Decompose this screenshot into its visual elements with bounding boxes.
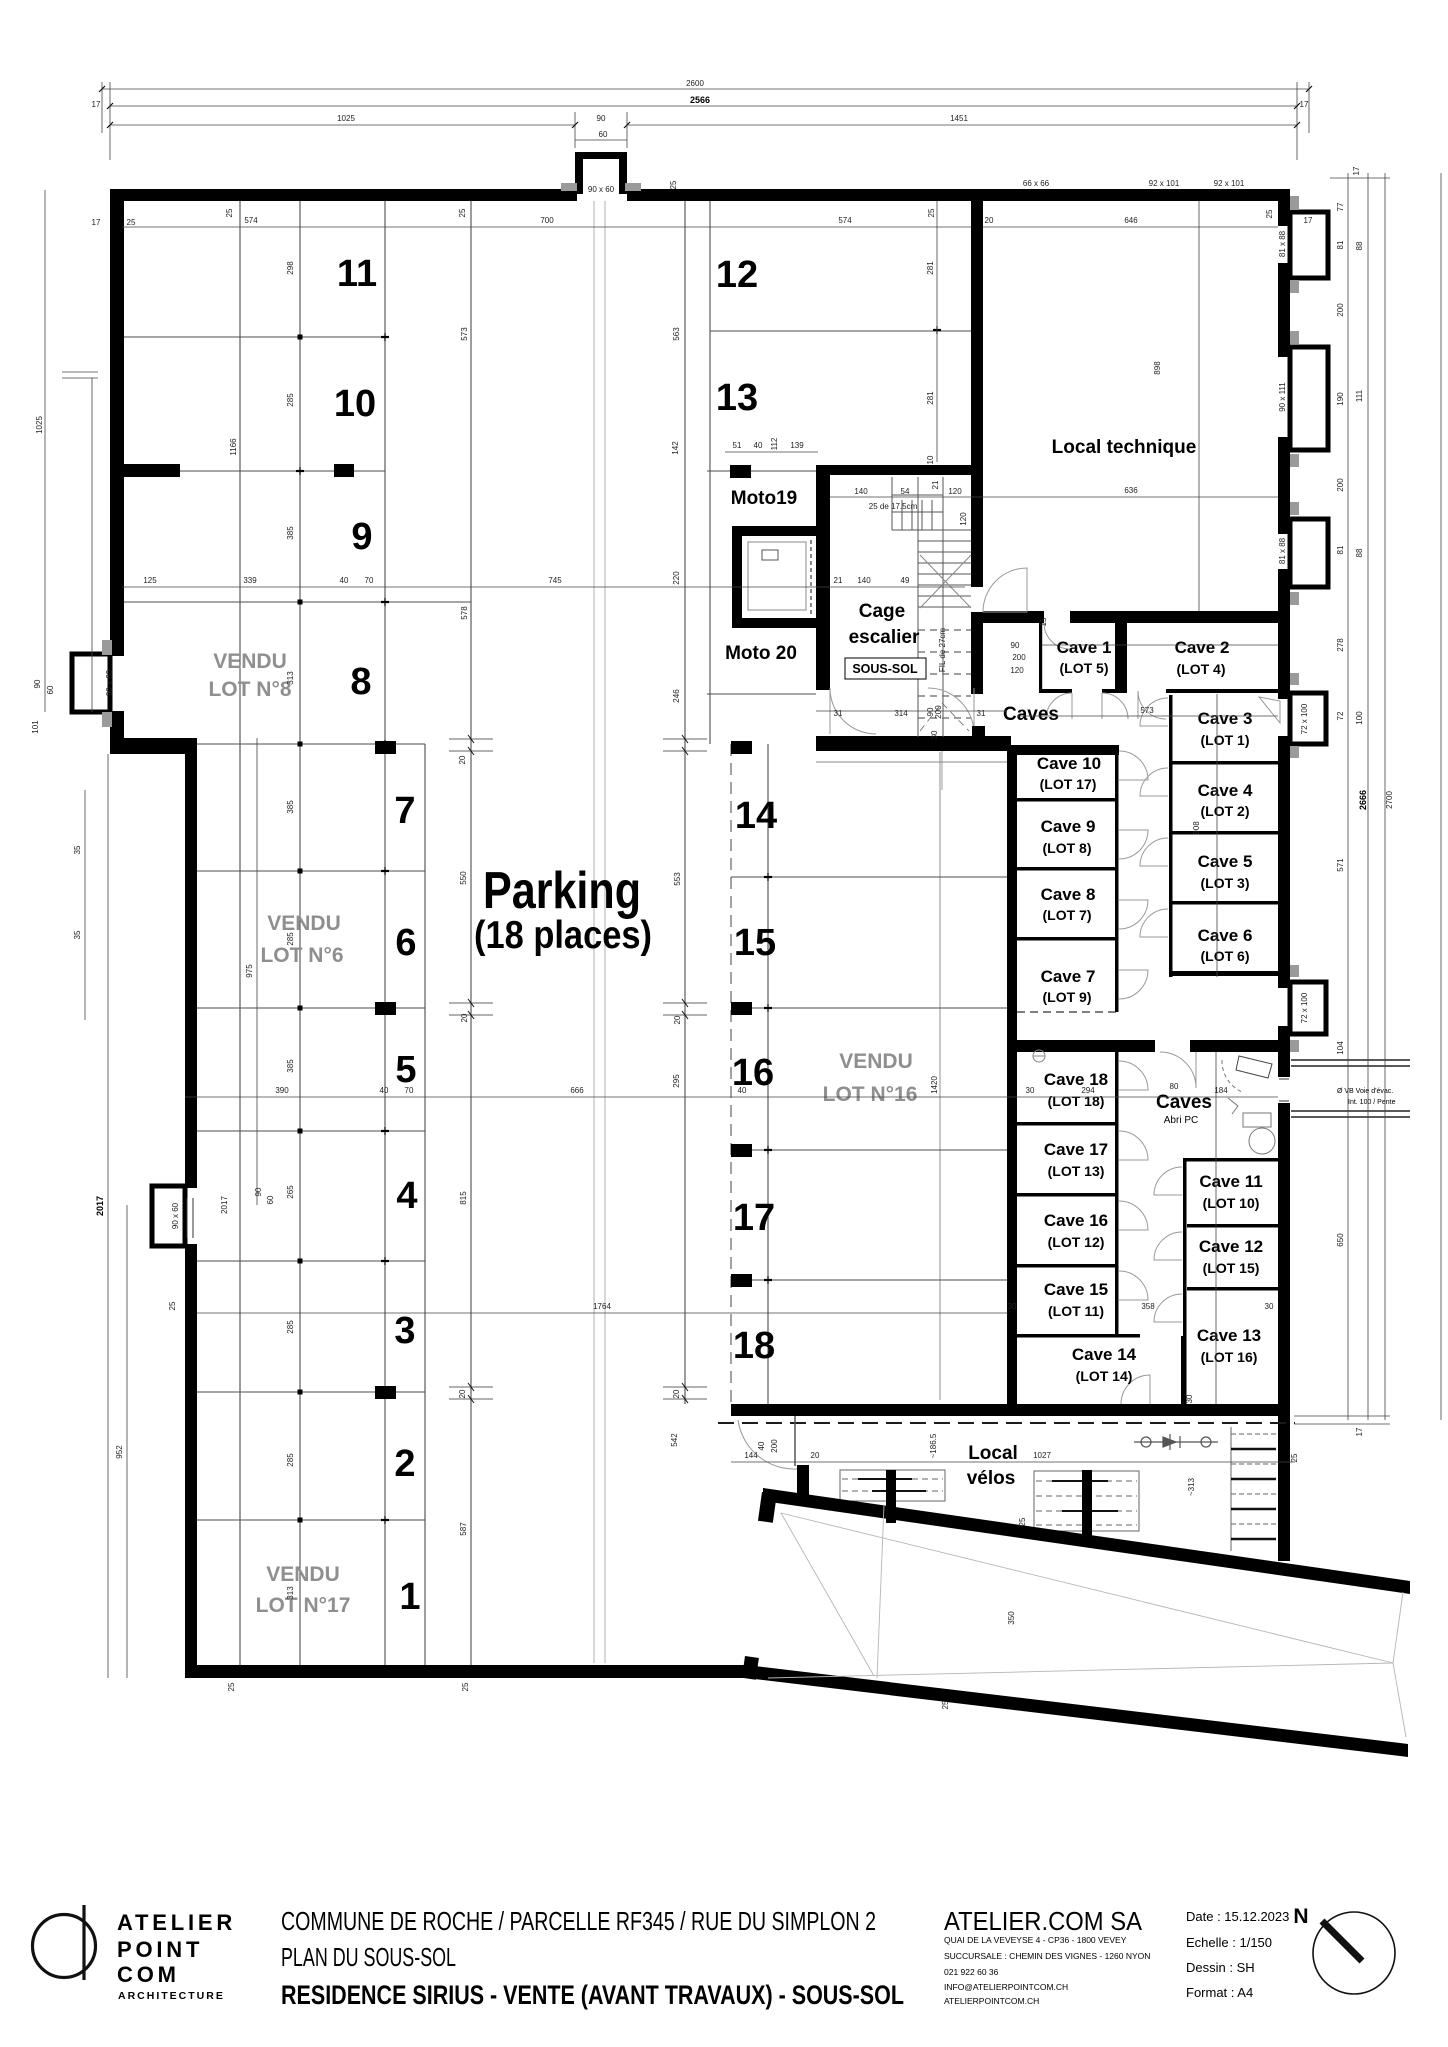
svg-text:VENDU: VENDU bbox=[213, 650, 287, 673]
svg-text:1027: 1027 bbox=[1033, 1451, 1051, 1460]
svg-text:(LOT 18): (LOT 18) bbox=[1048, 1093, 1105, 1109]
svg-text:10: 10 bbox=[926, 455, 935, 464]
svg-text:Int. 100 / Pente: Int. 100 / Pente bbox=[1348, 1099, 1396, 1106]
svg-text:285: 285 bbox=[286, 393, 295, 407]
svg-text:10: 10 bbox=[334, 383, 376, 425]
svg-text:9: 9 bbox=[351, 516, 372, 558]
svg-text:650: 650 bbox=[1336, 1233, 1345, 1247]
svg-text:666: 666 bbox=[570, 1086, 584, 1095]
svg-text:Cave 16: Cave 16 bbox=[1044, 1211, 1108, 1230]
svg-text:80: 80 bbox=[1170, 1082, 1179, 1091]
svg-text:17: 17 bbox=[92, 100, 101, 109]
svg-text:700: 700 bbox=[540, 216, 554, 225]
svg-text:Cave 1: Cave 1 bbox=[1057, 638, 1112, 657]
svg-text:15: 15 bbox=[1039, 617, 1048, 626]
svg-text:265: 265 bbox=[286, 1185, 295, 1199]
svg-text:1: 1 bbox=[399, 1576, 420, 1618]
svg-text:35: 35 bbox=[73, 930, 82, 939]
svg-text:246: 246 bbox=[672, 689, 681, 703]
svg-text:40: 40 bbox=[380, 1086, 389, 1095]
svg-text:30: 30 bbox=[1008, 1302, 1017, 1311]
svg-text:Caves: Caves bbox=[1156, 1092, 1212, 1113]
svg-text:313: 313 bbox=[286, 1586, 295, 1600]
svg-text:Local technique: Local technique bbox=[1052, 437, 1197, 458]
svg-text:30: 30 bbox=[1026, 1086, 1035, 1095]
svg-text:3: 3 bbox=[394, 1310, 415, 1352]
svg-text:31: 31 bbox=[834, 709, 843, 718]
svg-text:140: 140 bbox=[857, 576, 871, 585]
svg-text:563: 563 bbox=[672, 327, 681, 341]
svg-text:Parking: Parking bbox=[483, 862, 641, 920]
svg-text:81 x 88: 81 x 88 bbox=[1278, 230, 1287, 257]
svg-text:25: 25 bbox=[168, 1301, 177, 1310]
svg-text:7: 7 bbox=[394, 790, 415, 832]
svg-text:975: 975 bbox=[245, 964, 254, 978]
svg-text:140: 140 bbox=[854, 487, 868, 496]
svg-text:200: 200 bbox=[1336, 478, 1345, 492]
svg-text:17: 17 bbox=[1352, 166, 1361, 175]
svg-text:2: 2 bbox=[394, 1443, 415, 1485]
svg-text:77: 77 bbox=[1336, 202, 1345, 211]
svg-text:101: 101 bbox=[31, 720, 40, 734]
svg-text:81: 81 bbox=[1336, 545, 1345, 554]
svg-text:5: 5 bbox=[395, 1049, 416, 1091]
svg-text:20: 20 bbox=[673, 1015, 682, 1024]
svg-text:(LOT 12): (LOT 12) bbox=[1048, 1234, 1105, 1250]
svg-text:Cave 15: Cave 15 bbox=[1044, 1280, 1108, 1299]
svg-text:550: 550 bbox=[459, 871, 468, 885]
svg-text:90: 90 bbox=[254, 1187, 263, 1196]
svg-text:17: 17 bbox=[1355, 1427, 1364, 1436]
svg-text:Dessin : SH: Dessin : SH bbox=[1186, 1960, 1255, 1975]
svg-text:2566: 2566 bbox=[690, 95, 710, 105]
svg-text:2017: 2017 bbox=[95, 1196, 105, 1216]
svg-text:(18 places): (18 places) bbox=[474, 914, 652, 957]
svg-text:2666: 2666 bbox=[1358, 790, 1368, 810]
svg-text:72 x 100: 72 x 100 bbox=[1300, 703, 1309, 734]
svg-text:6: 6 bbox=[395, 922, 416, 964]
svg-text:LOT N°16: LOT N°16 bbox=[823, 1083, 918, 1106]
svg-text:(LOT 11): (LOT 11) bbox=[1048, 1303, 1104, 1319]
svg-text:Date : 15.12.2023: Date : 15.12.2023 bbox=[1186, 1909, 1289, 1924]
svg-text:Abri PC: Abri PC bbox=[1164, 1115, 1198, 1126]
svg-text:898: 898 bbox=[1153, 361, 1162, 375]
svg-text:PLAN DU SOUS-SOL: PLAN DU SOUS-SOL bbox=[281, 1942, 456, 1972]
svg-text:60: 60 bbox=[266, 1195, 275, 1204]
svg-text:745: 745 bbox=[548, 576, 562, 585]
svg-text:200: 200 bbox=[770, 1439, 779, 1453]
svg-text:Cave 13: Cave 13 bbox=[1197, 1326, 1261, 1345]
svg-text:542: 542 bbox=[670, 1433, 679, 1447]
svg-text:298: 298 bbox=[286, 261, 295, 275]
svg-text:11: 11 bbox=[337, 253, 377, 295]
svg-text:20: 20 bbox=[672, 1389, 681, 1398]
svg-text:RESIDENCE SIRIUS - VENTE (AVAN: RESIDENCE SIRIUS - VENTE (AVANT TRAVAUX)… bbox=[281, 1980, 904, 2010]
svg-text:Moto19: Moto19 bbox=[731, 488, 798, 509]
svg-text:VENDU: VENDU bbox=[267, 912, 341, 935]
svg-text:(LOT 2): (LOT 2) bbox=[1201, 803, 1250, 819]
svg-text:LOT N°8: LOT N°8 bbox=[208, 678, 291, 701]
svg-text:INFO@ATELIERPOINTCOM.CH: INFO@ATELIERPOINTCOM.CH bbox=[944, 1982, 1068, 1992]
svg-text:(LOT 13): (LOT 13) bbox=[1048, 1163, 1105, 1179]
svg-text:(LOT 15): (LOT 15) bbox=[1203, 1260, 1260, 1276]
svg-text:90: 90 bbox=[597, 114, 606, 123]
svg-text:POINT: POINT bbox=[117, 1937, 203, 1962]
svg-text:100: 100 bbox=[1355, 711, 1364, 725]
svg-text:574: 574 bbox=[838, 216, 852, 225]
svg-text:Cave 4: Cave 4 bbox=[1198, 781, 1253, 800]
svg-text:190: 190 bbox=[1336, 392, 1345, 406]
svg-text:40: 40 bbox=[340, 576, 349, 585]
svg-text:15: 15 bbox=[734, 922, 776, 964]
svg-text:120: 120 bbox=[948, 487, 962, 496]
svg-text:92 x 101: 92 x 101 bbox=[1214, 179, 1245, 188]
svg-text:Cave 8: Cave 8 bbox=[1041, 885, 1096, 904]
svg-text:COM: COM bbox=[117, 1962, 180, 1987]
svg-text:4: 4 bbox=[396, 1175, 417, 1217]
svg-text:281: 281 bbox=[926, 261, 935, 275]
svg-text:25: 25 bbox=[1018, 1517, 1027, 1526]
svg-text:Moto 20: Moto 20 bbox=[725, 643, 797, 664]
svg-text:(LOT 5): (LOT 5) bbox=[1060, 660, 1109, 676]
svg-text:12: 12 bbox=[716, 254, 758, 296]
svg-text:(LOT 9): (LOT 9) bbox=[1043, 989, 1092, 1005]
svg-text:1025: 1025 bbox=[337, 114, 355, 123]
svg-text:295: 295 bbox=[672, 1074, 681, 1088]
svg-text:ATELIER: ATELIER bbox=[117, 1910, 236, 1935]
svg-text:17: 17 bbox=[1300, 100, 1309, 109]
svg-text:90: 90 bbox=[1011, 641, 1020, 650]
svg-text:Cave 2: Cave 2 bbox=[1175, 638, 1230, 657]
svg-text:112: 112 bbox=[770, 437, 779, 450]
svg-text:70: 70 bbox=[405, 1086, 414, 1095]
svg-text:ATELIER.COM SA: ATELIER.COM SA bbox=[944, 1906, 1143, 1936]
svg-text:Caves: Caves bbox=[1003, 704, 1059, 725]
svg-text:90 x 60: 90 x 60 bbox=[588, 185, 615, 194]
svg-text:25 de 17.5cm: 25 de 17.5cm bbox=[869, 502, 918, 511]
svg-text:90 x 60: 90 x 60 bbox=[171, 1202, 180, 1229]
svg-text:Cave 18: Cave 18 bbox=[1044, 1070, 1108, 1089]
svg-text:Cave 7: Cave 7 bbox=[1041, 967, 1096, 986]
svg-text:SOUS-SOL: SOUS-SOL bbox=[852, 662, 918, 676]
svg-text:2600: 2600 bbox=[686, 79, 704, 88]
svg-text:ATELIERPOINTCOM.CH: ATELIERPOINTCOM.CH bbox=[944, 1996, 1039, 2006]
svg-text:72 x 100: 72 x 100 bbox=[1300, 992, 1309, 1023]
svg-text:25: 25 bbox=[941, 1700, 950, 1709]
svg-text:314: 314 bbox=[894, 709, 908, 718]
svg-text:20: 20 bbox=[985, 216, 994, 225]
svg-text:Cage: Cage bbox=[859, 601, 905, 622]
svg-text:8: 8 bbox=[350, 661, 371, 703]
svg-text:1025: 1025 bbox=[35, 416, 44, 434]
svg-text:358: 358 bbox=[1141, 1302, 1155, 1311]
svg-text:573: 573 bbox=[1140, 706, 1154, 715]
svg-text:30: 30 bbox=[930, 730, 939, 739]
svg-text:30: 30 bbox=[1185, 1394, 1194, 1403]
svg-text:18: 18 bbox=[733, 1325, 775, 1367]
svg-text:1166: 1166 bbox=[229, 438, 238, 456]
svg-text:(LOT 7): (LOT 7) bbox=[1043, 907, 1092, 923]
svg-text:Echelle : 1/150: Echelle : 1/150 bbox=[1186, 1935, 1272, 1950]
svg-text:Cave 10: Cave 10 bbox=[1037, 754, 1101, 773]
svg-text:LOT N°17: LOT N°17 bbox=[256, 1594, 351, 1617]
svg-text:646: 646 bbox=[1124, 216, 1138, 225]
svg-text:17: 17 bbox=[1304, 216, 1313, 225]
svg-text:200: 200 bbox=[1336, 303, 1345, 317]
svg-text:FIL de 27cm: FIL de 27cm bbox=[938, 628, 947, 673]
svg-text:20: 20 bbox=[458, 755, 467, 764]
svg-text:200: 200 bbox=[1012, 653, 1026, 662]
svg-text:25: 25 bbox=[127, 218, 136, 227]
svg-text:(LOT 17): (LOT 17) bbox=[1040, 776, 1097, 792]
svg-text:(LOT 14): (LOT 14) bbox=[1076, 1368, 1133, 1384]
svg-text:88: 88 bbox=[1355, 548, 1364, 557]
svg-text:281: 281 bbox=[926, 391, 935, 405]
svg-text:200: 200 bbox=[934, 705, 943, 719]
svg-text:Cave 9: Cave 9 bbox=[1041, 817, 1096, 836]
svg-text:1764: 1764 bbox=[593, 1302, 611, 1311]
svg-text:25: 25 bbox=[461, 1682, 470, 1691]
svg-text:VENDU: VENDU bbox=[839, 1050, 913, 1073]
svg-text:Cave 12: Cave 12 bbox=[1199, 1237, 1263, 1256]
svg-text:294: 294 bbox=[1081, 1086, 1095, 1095]
svg-text:120: 120 bbox=[1010, 666, 1024, 675]
svg-text:2017: 2017 bbox=[220, 1196, 229, 1214]
svg-text:(LOT 6): (LOT 6) bbox=[1201, 948, 1250, 964]
svg-text:20: 20 bbox=[811, 1451, 820, 1460]
svg-text:636: 636 bbox=[1124, 486, 1138, 495]
svg-text:21: 21 bbox=[931, 480, 940, 489]
svg-text:25: 25 bbox=[1290, 1453, 1299, 1462]
svg-text:25: 25 bbox=[927, 208, 936, 217]
svg-text:385: 385 bbox=[286, 800, 295, 814]
svg-text:Cave 5: Cave 5 bbox=[1198, 852, 1253, 871]
svg-text:573: 573 bbox=[460, 327, 469, 341]
svg-text:104: 104 bbox=[1336, 1041, 1345, 1055]
svg-text:81 x 88: 81 x 88 bbox=[1278, 537, 1287, 564]
svg-text:021 922 60 36: 021 922 60 36 bbox=[944, 1967, 999, 1977]
svg-text:142: 142 bbox=[671, 441, 680, 455]
svg-text:285: 285 bbox=[286, 1320, 295, 1334]
svg-text:90: 90 bbox=[33, 679, 42, 688]
svg-text:88: 88 bbox=[1355, 241, 1364, 250]
svg-text:(LOT 1): (LOT 1) bbox=[1201, 732, 1250, 748]
svg-text:908: 908 bbox=[1192, 821, 1201, 835]
svg-text:ARCHITECTURE: ARCHITECTURE bbox=[118, 1990, 225, 2002]
svg-text:25: 25 bbox=[227, 1682, 236, 1691]
svg-text:125: 125 bbox=[143, 576, 157, 585]
svg-text:339: 339 bbox=[243, 576, 257, 585]
svg-text:81: 81 bbox=[1336, 240, 1345, 249]
svg-text:17: 17 bbox=[733, 1197, 775, 1239]
svg-text:(LOT 8): (LOT 8) bbox=[1043, 840, 1092, 856]
svg-text:553: 553 bbox=[673, 872, 682, 886]
svg-text:21: 21 bbox=[834, 576, 843, 585]
svg-text:VENDU: VENDU bbox=[266, 1563, 340, 1586]
svg-text:54: 54 bbox=[901, 487, 910, 496]
svg-text:40: 40 bbox=[754, 441, 763, 450]
svg-text:285: 285 bbox=[286, 1453, 295, 1467]
svg-text:385: 385 bbox=[286, 1059, 295, 1073]
svg-text:51: 51 bbox=[733, 441, 742, 450]
svg-text:90 x 60: 90 x 60 bbox=[105, 669, 114, 696]
svg-text:587: 587 bbox=[459, 1522, 468, 1536]
svg-text:952: 952 bbox=[115, 1445, 124, 1459]
svg-text:574: 574 bbox=[244, 216, 258, 225]
svg-text:25: 25 bbox=[1265, 209, 1274, 218]
svg-text:1451: 1451 bbox=[950, 114, 968, 123]
svg-text:N: N bbox=[1293, 1905, 1308, 1928]
svg-text:Cave 14: Cave 14 bbox=[1072, 1345, 1137, 1364]
svg-text:184: 184 bbox=[1214, 1086, 1228, 1095]
svg-text:Format : A4: Format : A4 bbox=[1186, 1985, 1253, 2000]
svg-text:17: 17 bbox=[92, 218, 101, 227]
svg-text:578: 578 bbox=[460, 606, 469, 620]
svg-text:(LOT 4): (LOT 4) bbox=[1177, 661, 1226, 677]
svg-text:385: 385 bbox=[286, 526, 295, 540]
svg-text:(LOT 16): (LOT 16) bbox=[1201, 1349, 1258, 1365]
svg-text:2700: 2700 bbox=[1385, 791, 1394, 809]
svg-text:60: 60 bbox=[46, 685, 55, 694]
svg-text:390: 390 bbox=[275, 1086, 289, 1095]
svg-text:70: 70 bbox=[365, 576, 374, 585]
svg-text:285: 285 bbox=[286, 932, 295, 946]
svg-text:Cave 6: Cave 6 bbox=[1198, 926, 1253, 945]
svg-text:815: 815 bbox=[459, 1191, 468, 1205]
svg-text:571: 571 bbox=[1336, 858, 1345, 872]
svg-text:35: 35 bbox=[73, 845, 82, 854]
svg-text:LOT N°6: LOT N°6 bbox=[260, 944, 343, 967]
svg-text:25: 25 bbox=[458, 208, 467, 217]
svg-text:QUAI DE LA VEVEYSE 4 - CP36 -: QUAI DE LA VEVEYSE 4 - CP36 - 1800 VEVEY bbox=[944, 1935, 1127, 1945]
svg-text:278: 278 bbox=[1336, 638, 1345, 652]
svg-text:111: 111 bbox=[1355, 389, 1364, 402]
svg-text:~186.5: ~186.5 bbox=[929, 1433, 938, 1458]
svg-text:66 x 66: 66 x 66 bbox=[1023, 179, 1050, 188]
svg-text:120: 120 bbox=[959, 512, 968, 526]
svg-text:20: 20 bbox=[458, 1389, 467, 1398]
svg-text:30: 30 bbox=[1265, 1302, 1274, 1311]
svg-text:1420: 1420 bbox=[930, 1076, 939, 1094]
svg-text:Cave 17: Cave 17 bbox=[1044, 1140, 1108, 1159]
svg-text:72: 72 bbox=[1336, 711, 1345, 720]
svg-text:144: 144 bbox=[744, 1451, 758, 1460]
svg-text:Cave 11: Cave 11 bbox=[1199, 1172, 1262, 1191]
svg-text:350: 350 bbox=[1007, 1611, 1016, 1625]
svg-text:31: 31 bbox=[977, 709, 986, 718]
svg-text:14: 14 bbox=[735, 795, 777, 837]
svg-text:Local: Local bbox=[968, 1443, 1018, 1464]
svg-text:13: 13 bbox=[716, 377, 758, 419]
svg-text:40: 40 bbox=[738, 1086, 747, 1095]
svg-text:92 x 101: 92 x 101 bbox=[1149, 179, 1180, 188]
svg-text:COMMUNE DE ROCHE / PARCELLE RF: COMMUNE DE ROCHE / PARCELLE RF345 / RUE … bbox=[281, 1906, 876, 1936]
svg-text:(LOT 10): (LOT 10) bbox=[1203, 1195, 1260, 1211]
svg-text:40: 40 bbox=[757, 1441, 766, 1450]
svg-text:313: 313 bbox=[286, 671, 295, 685]
svg-text:vélos: vélos bbox=[967, 1468, 1016, 1489]
svg-text:~313: ~313 bbox=[1187, 1477, 1196, 1496]
svg-text:SUCCURSALE : CHEMIN DES VIGNES: SUCCURSALE : CHEMIN DES VIGNES - 1260 NY… bbox=[944, 1951, 1150, 1961]
svg-text:escalier: escalier bbox=[849, 627, 920, 648]
svg-text:20: 20 bbox=[460, 1013, 469, 1022]
svg-text:139: 139 bbox=[790, 441, 804, 450]
svg-text:60: 60 bbox=[599, 130, 608, 139]
svg-text:(LOT 3): (LOT 3) bbox=[1201, 875, 1250, 891]
svg-text:25: 25 bbox=[225, 208, 234, 217]
svg-text:49: 49 bbox=[901, 576, 910, 585]
svg-text:Cave 3: Cave 3 bbox=[1198, 709, 1253, 728]
svg-text:25: 25 bbox=[669, 180, 678, 189]
svg-text:90 x 111: 90 x 111 bbox=[1278, 382, 1287, 412]
svg-text:220: 220 bbox=[672, 571, 681, 585]
